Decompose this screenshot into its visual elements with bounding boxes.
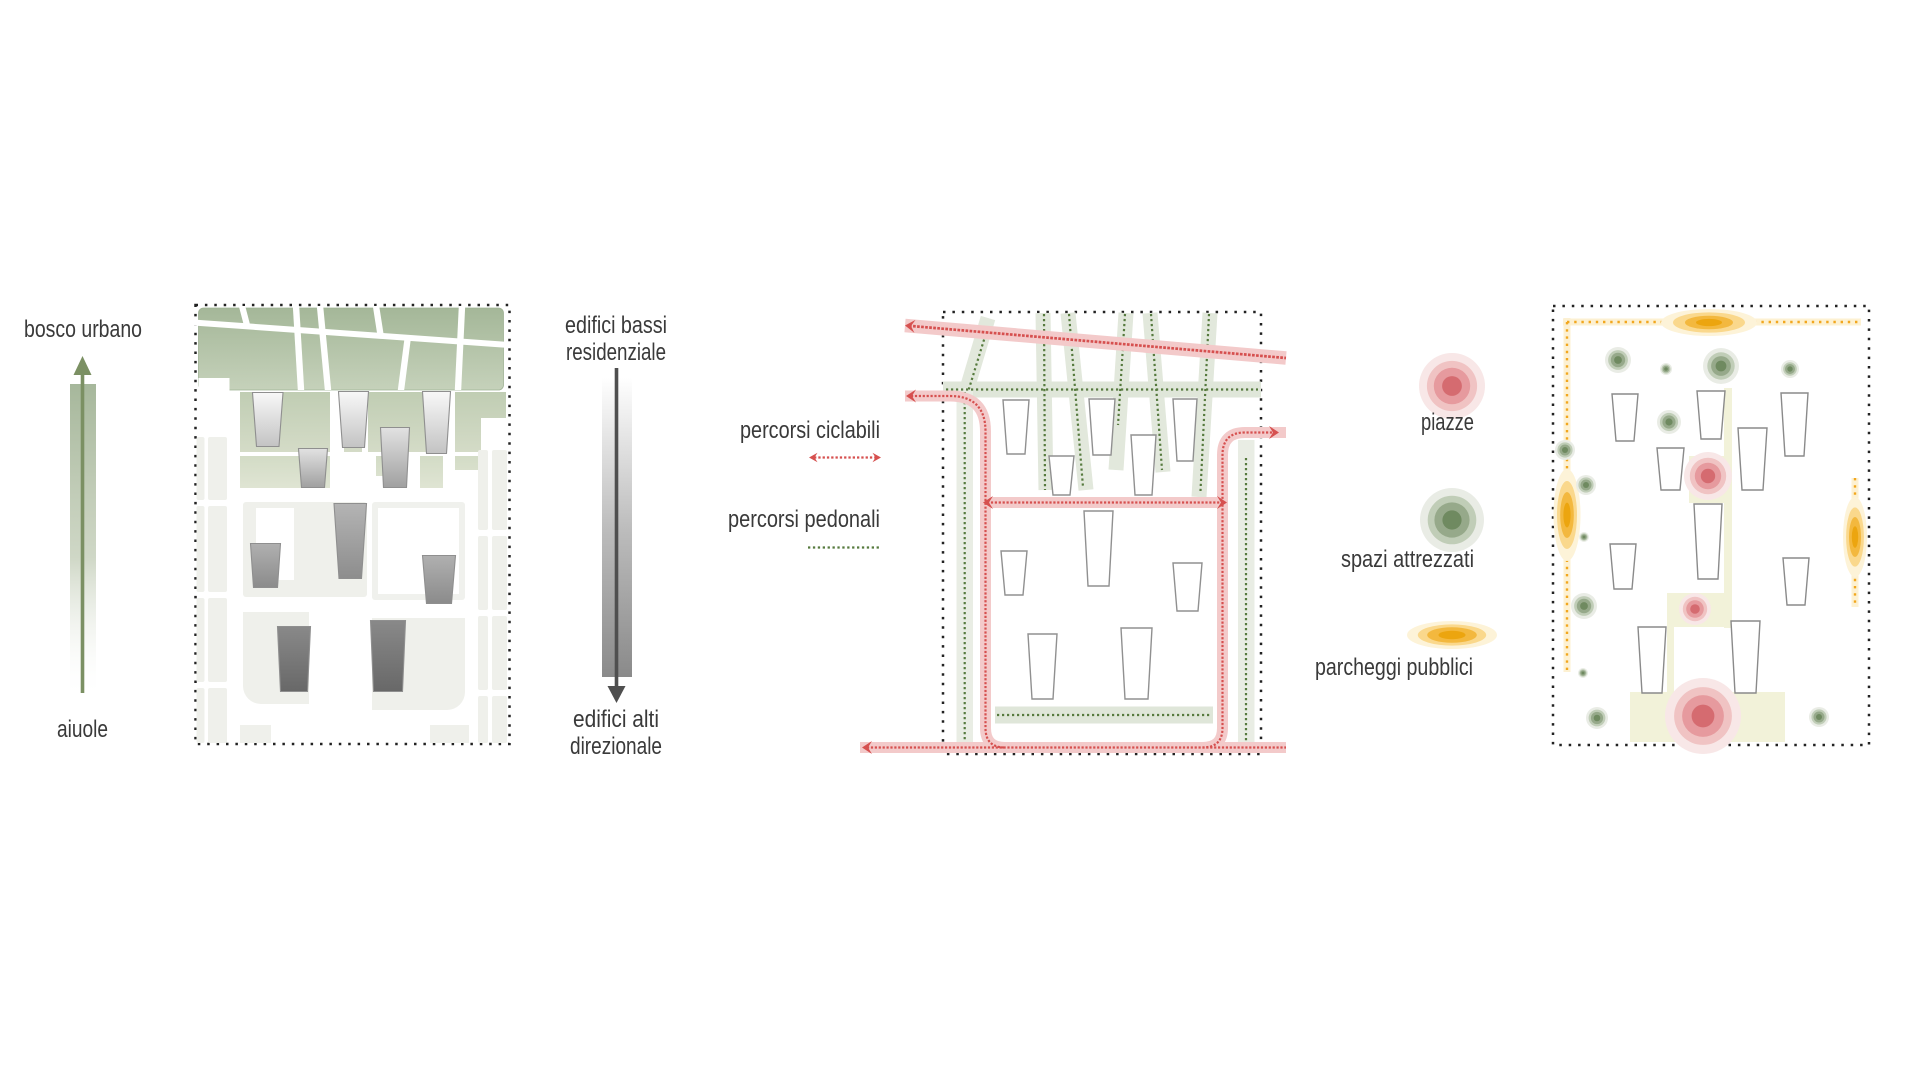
svg-text:residenziale: residenziale — [566, 339, 666, 366]
svg-text:direzionale: direzionale — [570, 733, 662, 760]
svg-text:edifici alti: edifici alti — [573, 706, 659, 733]
svg-text:spazi attrezzati: spazi attrezzati — [1341, 546, 1474, 573]
svg-text:bosco urbano: bosco urbano — [24, 316, 142, 343]
svg-text:aiuole: aiuole — [57, 716, 108, 743]
svg-text:percorsi ciclabili: percorsi ciclabili — [740, 417, 880, 444]
svg-text:percorsi pedonali: percorsi pedonali — [728, 506, 880, 533]
svg-text:parcheggi pubblici: parcheggi pubblici — [1315, 654, 1473, 681]
svg-text:edifici bassi: edifici bassi — [565, 312, 667, 339]
svg-text:piazze: piazze — [1421, 409, 1474, 436]
